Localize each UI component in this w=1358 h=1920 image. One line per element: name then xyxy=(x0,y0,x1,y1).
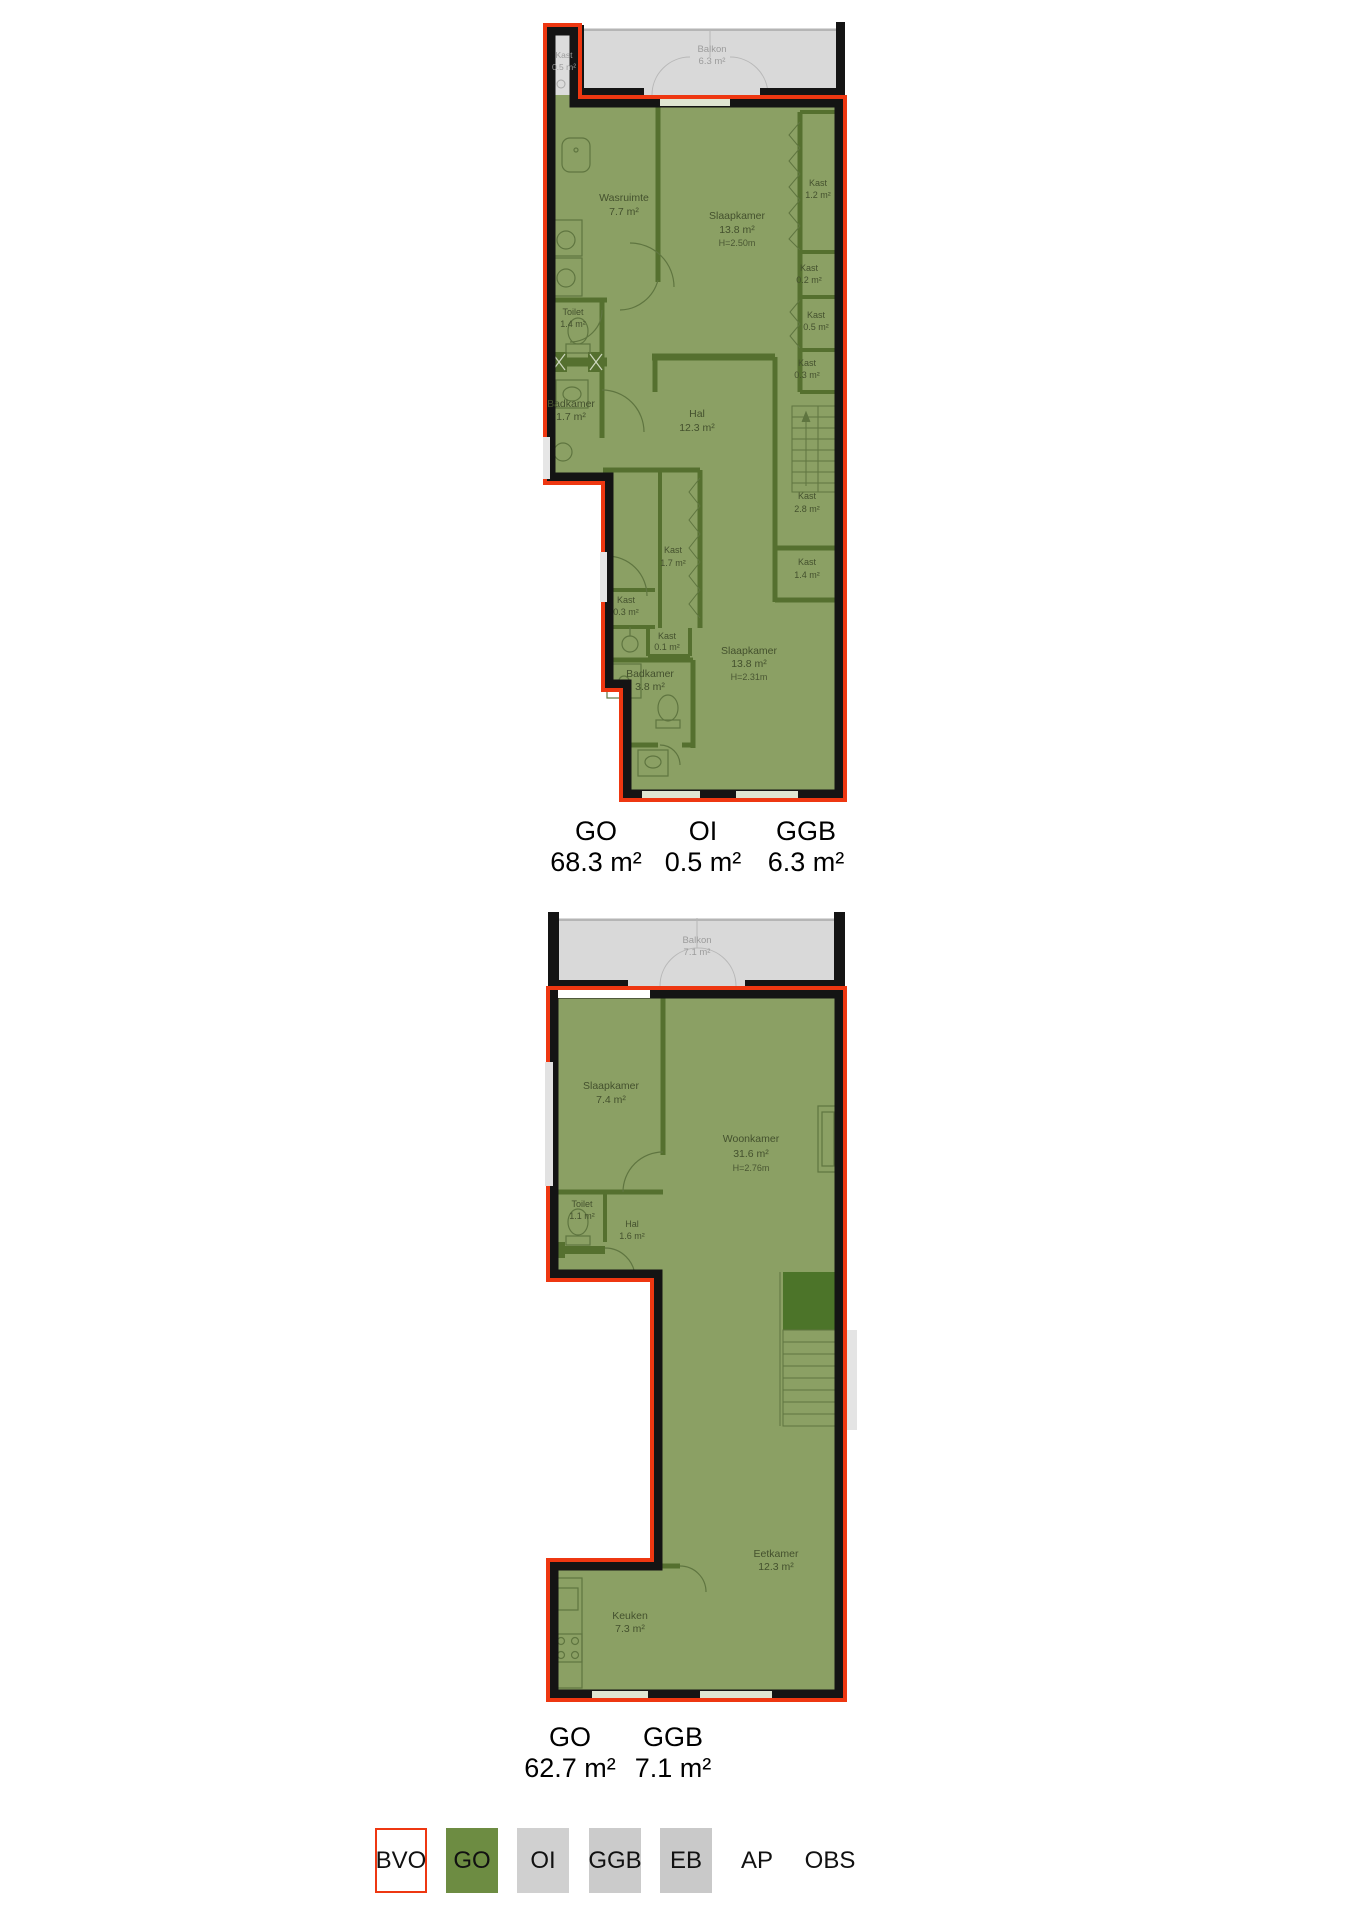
room-name: Slaapkamer xyxy=(721,645,778,657)
balkon-wall-right-1 xyxy=(836,22,845,97)
room-label-balkon-1: Balkon 6.3 m² xyxy=(697,44,726,67)
room-area: 0.5 m² xyxy=(803,322,829,332)
floorplan-1: Kast 0.5 m² Balkon 6.3 m² Wasruimte 7.7 … xyxy=(543,22,845,800)
plan1-stat-oi: OI 0.5 m² xyxy=(665,816,742,878)
room-area: 0.3 m² xyxy=(794,370,820,380)
room-height: H=2.50m xyxy=(719,238,756,248)
room-name: Badkamer xyxy=(626,668,674,680)
legend-label: OBS xyxy=(805,1847,856,1875)
room-name: Balkon xyxy=(682,935,711,946)
room-name: Hal xyxy=(625,1219,639,1229)
room-name: Kast xyxy=(800,263,819,273)
room-name: Toilet xyxy=(562,307,584,317)
go-area-fill-2 xyxy=(548,988,845,1700)
stat-label: OI xyxy=(665,816,742,847)
room-name: Kast xyxy=(658,631,677,641)
plan1-stat-go: GO 68.3 m² xyxy=(550,816,642,878)
legend-swatch-oi: OI xyxy=(517,1828,569,1893)
balkon-wall-left-2 xyxy=(548,912,559,988)
stat-label: GO xyxy=(550,816,642,847)
room-area: 12.3 m² xyxy=(758,1561,794,1573)
room-name: Slaapkamer xyxy=(583,1080,640,1092)
legend-item-obs: OBS xyxy=(804,1828,856,1893)
plan1-stat-ggb: GGB 6.3 m² xyxy=(768,816,845,878)
stat-value: 0.5 m² xyxy=(665,847,742,878)
legend-label: AP xyxy=(741,1847,773,1875)
room-name: Kast xyxy=(555,50,573,60)
room-area: 0.3 m² xyxy=(613,607,639,617)
room-name: Hal xyxy=(689,408,705,420)
legend-swatch-ggb: GGB xyxy=(589,1828,641,1893)
legend-label: BVO xyxy=(376,1847,427,1875)
room-area: 12.3 m² xyxy=(679,422,715,434)
stat-label: GGB xyxy=(768,816,845,847)
room-name: Badkamer xyxy=(547,398,595,410)
room-name: Woonkamer xyxy=(723,1133,780,1145)
room-area: 0.1 m² xyxy=(654,642,680,652)
legend-label: OI xyxy=(530,1847,555,1875)
room-area: 7.1 m² xyxy=(684,947,711,958)
room-name: Kast xyxy=(664,545,683,555)
room-area: 13.8 m² xyxy=(719,224,755,236)
stat-label: GO xyxy=(524,1722,616,1753)
room-name: Kast xyxy=(798,491,817,501)
stat-value: 6.3 m² xyxy=(768,847,845,878)
room-area: 1.1 m² xyxy=(569,1211,595,1221)
legend-swatch-eb: EB xyxy=(660,1828,712,1893)
room-name: Eetkamer xyxy=(754,1548,799,1560)
plan2-stat-ggb: GGB 7.1 m² xyxy=(635,1722,712,1784)
room-area: 1.4 m² xyxy=(560,319,586,329)
stat-value: 62.7 m² xyxy=(524,1753,616,1784)
room-area: 31.6 m² xyxy=(733,1148,769,1160)
room-area: 7.7 m² xyxy=(609,206,639,218)
plan2-stat-go: GO 62.7 m² xyxy=(524,1722,616,1784)
room-height: H=2.76m xyxy=(733,1163,770,1173)
room-area: 3.8 m² xyxy=(635,681,665,693)
room-area: 6.3 m² xyxy=(699,56,726,67)
room-name: Slaapkamer xyxy=(709,210,766,222)
room-area: 13.8 m² xyxy=(731,658,767,670)
legend-swatch-bvo: BVO xyxy=(375,1828,427,1893)
room-area: 0.2 m² xyxy=(796,275,822,285)
room-area: 1.6 m² xyxy=(619,1231,645,1241)
room-label-balkon-2: Balkon 7.1 m² xyxy=(682,935,711,958)
stat-label: GGB xyxy=(635,1722,712,1753)
room-label-keuken: Keuken 7.3 m² xyxy=(612,1610,648,1635)
room-area: 7.4 m² xyxy=(596,1094,626,1106)
room-name: Balkon xyxy=(697,44,726,55)
room-area: 0.5 m² xyxy=(552,62,576,72)
legend-label: GGB xyxy=(588,1847,641,1875)
room-label-eetkamer: Eetkamer 12.3 m² xyxy=(754,1548,799,1573)
room-area: 1.7 m² xyxy=(556,411,586,423)
floorplan-report-page: { "colors": { "bvo_outline_red": "#ee371… xyxy=(0,0,1358,1920)
room-area: 1.4 m² xyxy=(794,570,820,580)
floorplan-canvas: Kast 0.5 m² Balkon 6.3 m² Wasruimte 7.7 … xyxy=(0,0,1358,1920)
floorplan-2: Balkon 7.1 m² Slaapkamer 7.4 m² Woonkame… xyxy=(545,912,857,1700)
room-name: Kast xyxy=(798,358,817,368)
room-name: Kast xyxy=(809,178,828,188)
legend-item-ap: AP xyxy=(731,1828,783,1893)
stat-value: 68.3 m² xyxy=(550,847,642,878)
room-name: Kast xyxy=(617,595,636,605)
room-area: 7.3 m² xyxy=(615,1623,645,1635)
room-name: Kast xyxy=(807,310,826,320)
room-name: Kast xyxy=(798,557,817,567)
room-name: Toilet xyxy=(571,1199,593,1209)
room-area: 2.8 m² xyxy=(794,504,820,514)
legend-label: GO xyxy=(453,1847,490,1875)
room-area: 1.2 m² xyxy=(805,190,831,200)
room-height: H=2.31m xyxy=(731,672,768,682)
balkon-wall-right-2 xyxy=(834,912,845,988)
legend-label: EB xyxy=(670,1847,702,1875)
legend-swatch-go: GO xyxy=(446,1828,498,1893)
room-name: Wasruimte xyxy=(599,192,649,204)
room-name: Keuken xyxy=(612,1610,648,1622)
room-area: 1.7 m² xyxy=(660,558,686,568)
stat-value: 7.1 m² xyxy=(635,1753,712,1784)
room-label-kast-0-1: Kast 0.1 m² xyxy=(654,631,680,652)
